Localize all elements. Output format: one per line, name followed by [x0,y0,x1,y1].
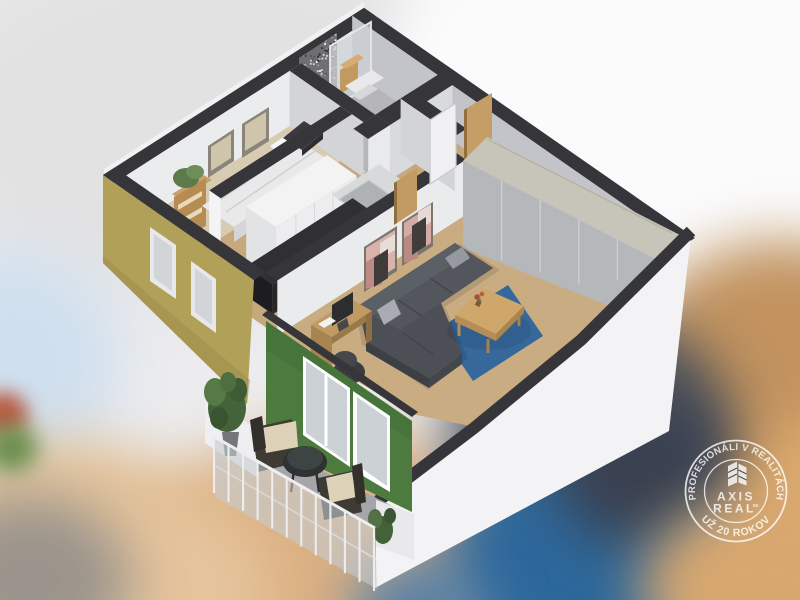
svg-text:SK: SK [753,503,760,508]
svg-text:REAL: REAL [713,502,756,516]
